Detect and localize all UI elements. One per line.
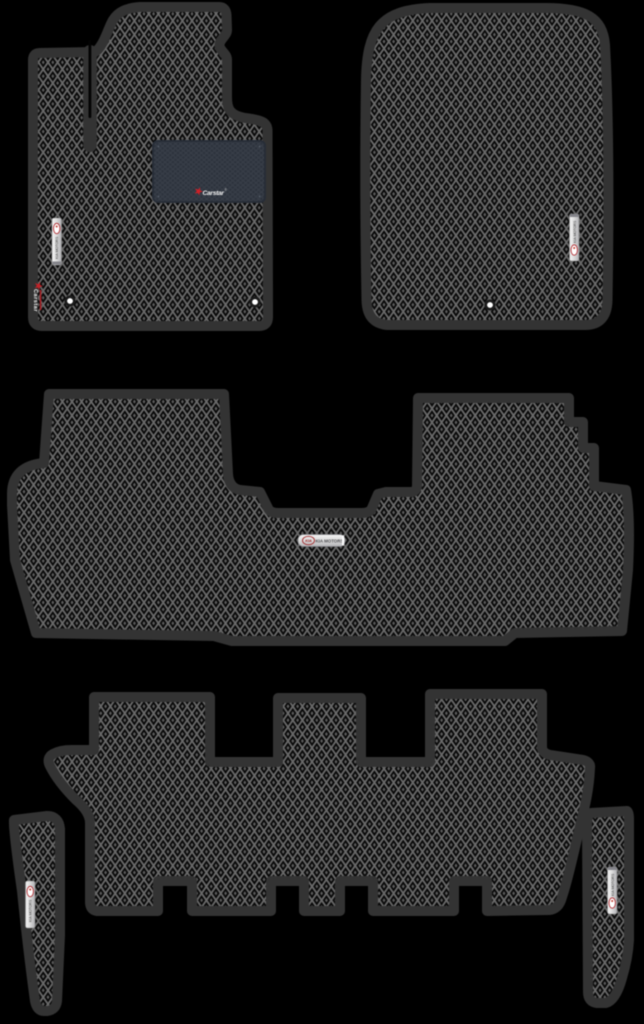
svg-text:KIA MOTORS: KIA MOTORS <box>55 236 59 259</box>
svg-text:KIA: KIA <box>305 539 312 543</box>
svg-text:KIA MOTORS: KIA MOTORS <box>29 899 33 922</box>
svg-text:Carstar: Carstar <box>203 190 225 197</box>
svg-text:KIA MOTORS: KIA MOTORS <box>573 220 577 243</box>
svg-text:KIA MOTORS: KIA MOTORS <box>316 538 344 543</box>
svg-text:KIA MOTORS: KIA MOTORS <box>611 873 615 896</box>
svg-text:Carstar: Carstar <box>32 289 38 312</box>
